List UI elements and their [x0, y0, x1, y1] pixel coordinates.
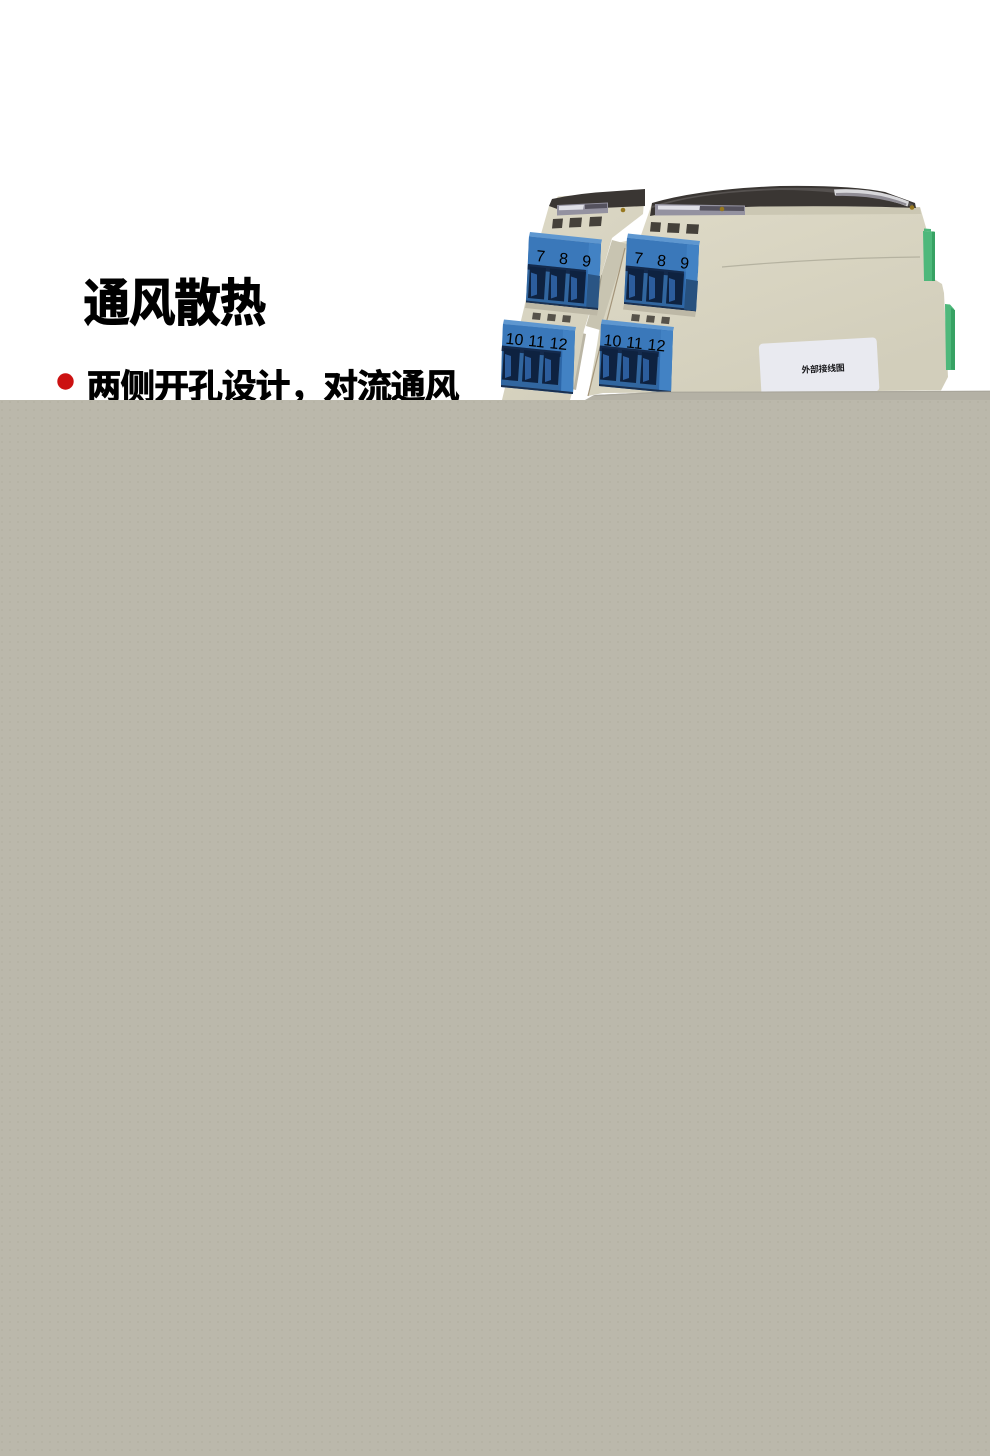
svg-text:9: 9: [581, 253, 592, 271]
svg-text:9: 9: [679, 255, 690, 273]
svg-text:8: 8: [558, 251, 569, 269]
svg-text:11: 11: [625, 335, 643, 354]
svg-text:7: 7: [633, 250, 644, 268]
svg-text:10: 10: [603, 332, 623, 351]
svg-text:11: 11: [527, 333, 545, 352]
svg-text:12: 12: [549, 335, 569, 354]
svg-text:7: 7: [535, 248, 546, 266]
svg-text:10: 10: [505, 331, 525, 350]
svg-text:12: 12: [647, 337, 667, 356]
svg-text:8: 8: [656, 253, 667, 271]
